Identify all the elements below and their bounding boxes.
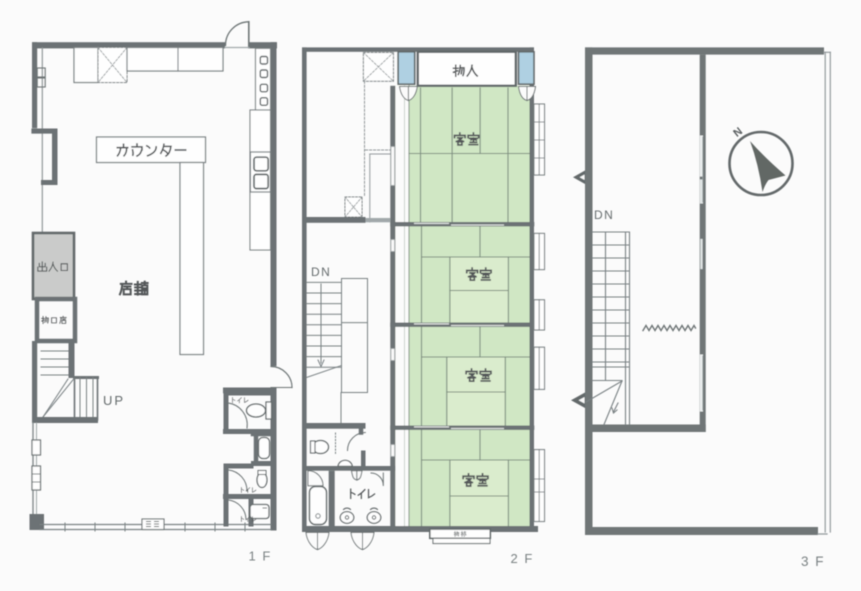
- svg-text:UP: UP: [103, 393, 125, 408]
- svg-text:DN: DN: [594, 208, 614, 222]
- svg-text:3 F: 3 F: [801, 554, 825, 569]
- svg-text:1 F: 1 F: [249, 549, 272, 564]
- svg-text:2 F: 2 F: [511, 551, 534, 566]
- svg-text:DN: DN: [311, 265, 331, 279]
